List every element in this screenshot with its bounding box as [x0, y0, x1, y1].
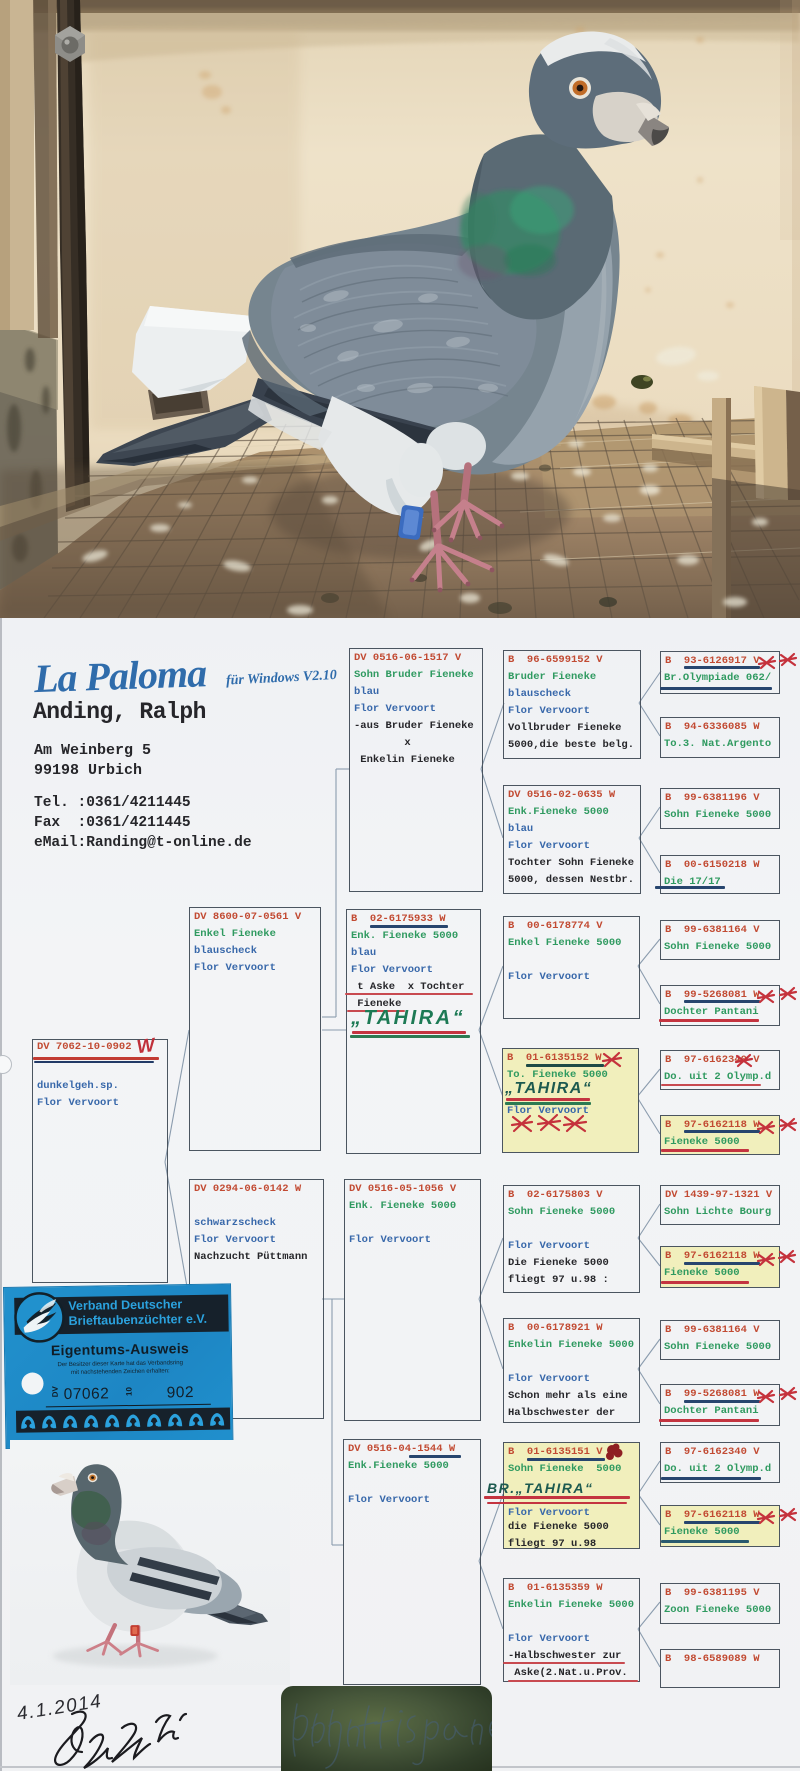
svg-text:4.1.2014: 4.1.2014 — [15, 1691, 103, 1725]
